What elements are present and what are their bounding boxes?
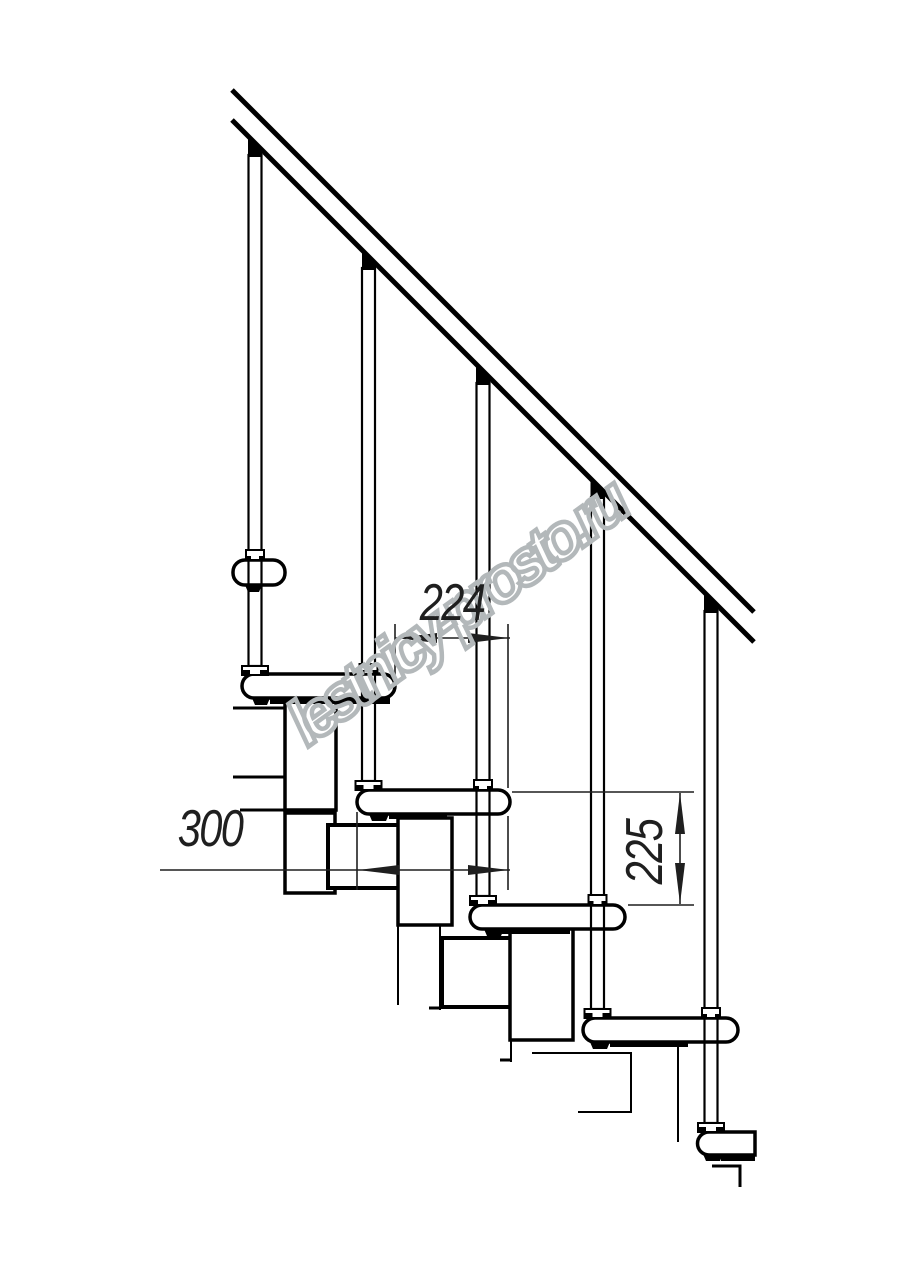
tread-5-partial	[698, 1132, 756, 1155]
upper-step-end-module	[233, 708, 288, 810]
dimension-step-run-label: 224	[400, 577, 504, 629]
tread-3	[470, 905, 625, 929]
module-5	[712, 1166, 740, 1187]
dimension-riser-height-label: 225	[619, 808, 671, 896]
baluster-5	[698, 592, 724, 1132]
staircase-linework	[0, 0, 914, 1280]
staircase-drawing: lestnicy-prosto.ru 224 300 225	[0, 0, 914, 1280]
baluster-2	[356, 249, 382, 790]
support-modules	[233, 698, 740, 1187]
tread-4	[583, 1018, 738, 1042]
tread-2	[357, 790, 510, 814]
handrail	[232, 90, 754, 642]
baluster-4	[585, 478, 611, 1018]
baluster-1	[242, 136, 268, 675]
tread-upper-end-view	[233, 560, 285, 585]
dimension-tread-depth-label: 300	[162, 803, 258, 855]
tread-1	[242, 674, 395, 698]
